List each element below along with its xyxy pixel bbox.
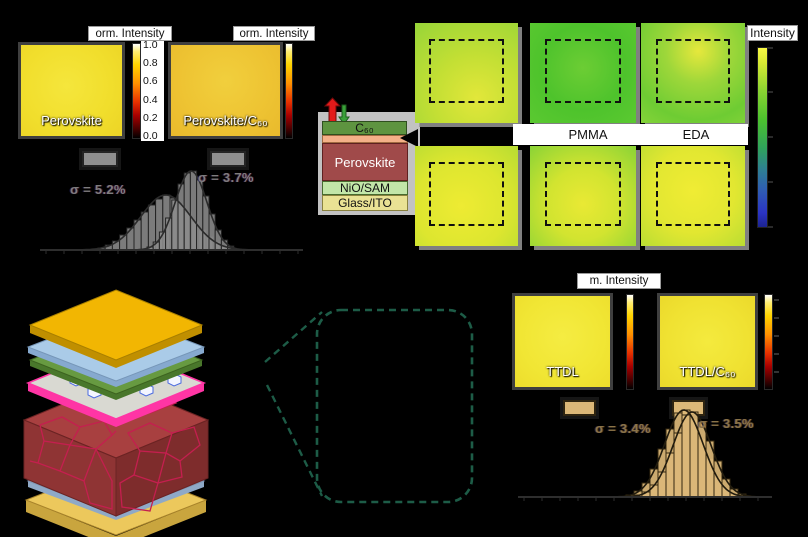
dashed-roi: [545, 162, 621, 226]
colorbar-ticks: 1.0 0.8 0.6 0.4 0.2 0.0: [141, 41, 164, 141]
pl-map-row2-eda: [641, 146, 745, 246]
tick: 1.0: [143, 41, 158, 50]
dashed-roi: [656, 39, 731, 103]
pl-map-label: TTDL: [515, 364, 610, 379]
colorbar-hot-mid: [626, 294, 634, 390]
layer-nio-sam: NiO/SAM: [322, 181, 408, 195]
pl-map-label: TTDL/C₆₀: [660, 364, 755, 379]
colorbar-hot-far-right: [764, 294, 773, 390]
tick: 0.4: [143, 96, 158, 105]
colorbar-ttdl-ticks: [774, 294, 780, 390]
tick: 0.0: [143, 132, 158, 141]
layer-glass-ito: Glass/ITO: [322, 195, 408, 211]
device-3d-structure: [0, 285, 240, 537]
pl-map-label: Perovskite/C₆₀: [171, 113, 280, 128]
sigma-label-ttdl: σ = 3.4%: [595, 421, 651, 436]
colorbar-title-intensity: Intensity: [747, 25, 798, 41]
dashed-roi: [429, 39, 503, 103]
zoom-box: [317, 310, 472, 502]
zoom-callout: [255, 300, 485, 515]
dashed-roi: [656, 162, 731, 226]
colorbar-title-left: orm. Intensity: [88, 26, 172, 41]
layer-perovskite: Perovskite: [322, 143, 408, 181]
treatment-label-band: PMMA EDA: [513, 124, 748, 145]
figure-canvas: orm. Intensity orm. Intensity Perovskite…: [0, 0, 808, 537]
callout-line-bottom: [267, 385, 322, 496]
colorbar-hot-right: [285, 43, 293, 139]
colorbar-title-ttdl: m. Intensity: [577, 273, 661, 289]
pl-map-ttdl: TTDL: [512, 293, 613, 390]
pl-map-row2-control: [415, 146, 518, 246]
pl-map-row1-control: [415, 23, 518, 123]
pl-map-row2-pmma: [530, 146, 636, 246]
pl-map-row1-pmma: [530, 23, 636, 123]
histogram-perovskite: [35, 160, 310, 260]
tick: 0.6: [143, 77, 158, 86]
layer-interlayer: [322, 135, 408, 143]
colorbar-green: [757, 47, 768, 228]
layer-c60: C₆₀: [322, 121, 407, 135]
callout-line-top: [265, 312, 322, 362]
tick: 0.8: [143, 59, 158, 68]
pl-map-perovskite: Perovskite: [18, 42, 125, 139]
label-eda: EDA: [665, 124, 727, 145]
pl-map-row1-eda: [641, 23, 745, 123]
pl-map-label: Perovskite: [21, 113, 122, 128]
sigma-label-perovskite: σ = 5.2%: [70, 182, 126, 197]
pl-map-ttdl-c60: TTDL/C₆₀: [657, 293, 758, 390]
label-pmma: PMMA: [553, 124, 623, 145]
colorbar-hot-left: [132, 43, 141, 139]
dashed-roi: [429, 162, 503, 226]
up-arrow-icon: [325, 98, 340, 122]
colorbar-green-ticks: [768, 47, 774, 228]
sigma-label-perovskite-c60: σ = 3.7%: [198, 170, 254, 185]
interlayer-pointer-icon: [400, 129, 418, 147]
colorbar-title-right: orm. Intensity: [233, 26, 315, 41]
sigma-label-ttdl-c60: σ = 3.5%: [698, 416, 754, 431]
pl-map-perovskite-c60: Perovskite/C₆₀: [168, 42, 283, 139]
tick: 0.2: [143, 114, 158, 123]
dashed-roi: [545, 39, 621, 103]
